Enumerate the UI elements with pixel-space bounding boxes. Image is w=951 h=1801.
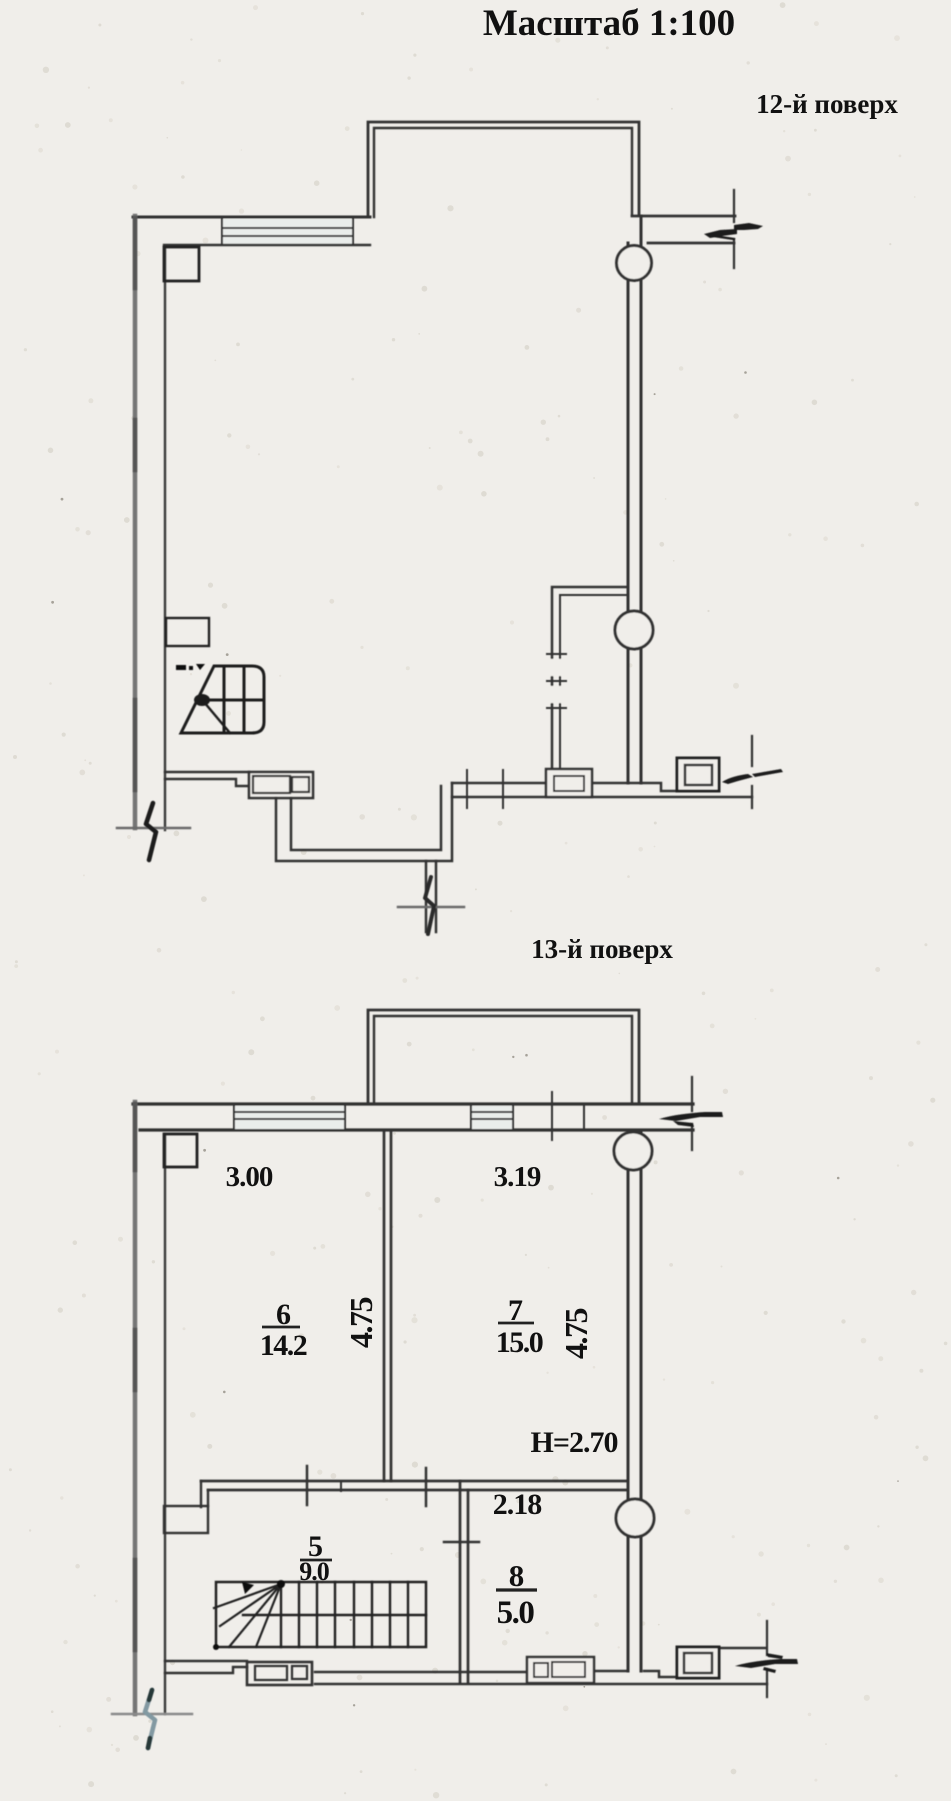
svg-text:9.0: 9.0 xyxy=(299,1557,330,1586)
svg-text:5.0: 5.0 xyxy=(497,1595,535,1631)
svg-text:13-й поверх: 13-й поверх xyxy=(531,934,673,964)
svg-text:14.2: 14.2 xyxy=(260,1329,307,1362)
svg-text:Масштаб 1:100: Масштаб 1:100 xyxy=(483,3,735,44)
svg-text:4.75: 4.75 xyxy=(343,1298,379,1349)
svg-text:8: 8 xyxy=(509,1558,524,1593)
svg-text:15.0: 15.0 xyxy=(496,1326,543,1359)
svg-text:4.75: 4.75 xyxy=(558,1309,594,1360)
svg-text:3.19: 3.19 xyxy=(494,1161,541,1193)
svg-text:3.00: 3.00 xyxy=(226,1161,273,1193)
svg-text:Н=2.70: Н=2.70 xyxy=(531,1426,618,1459)
svg-text:12-й поверх: 12-й поверх xyxy=(756,89,898,119)
svg-text:2.18: 2.18 xyxy=(493,1488,542,1521)
